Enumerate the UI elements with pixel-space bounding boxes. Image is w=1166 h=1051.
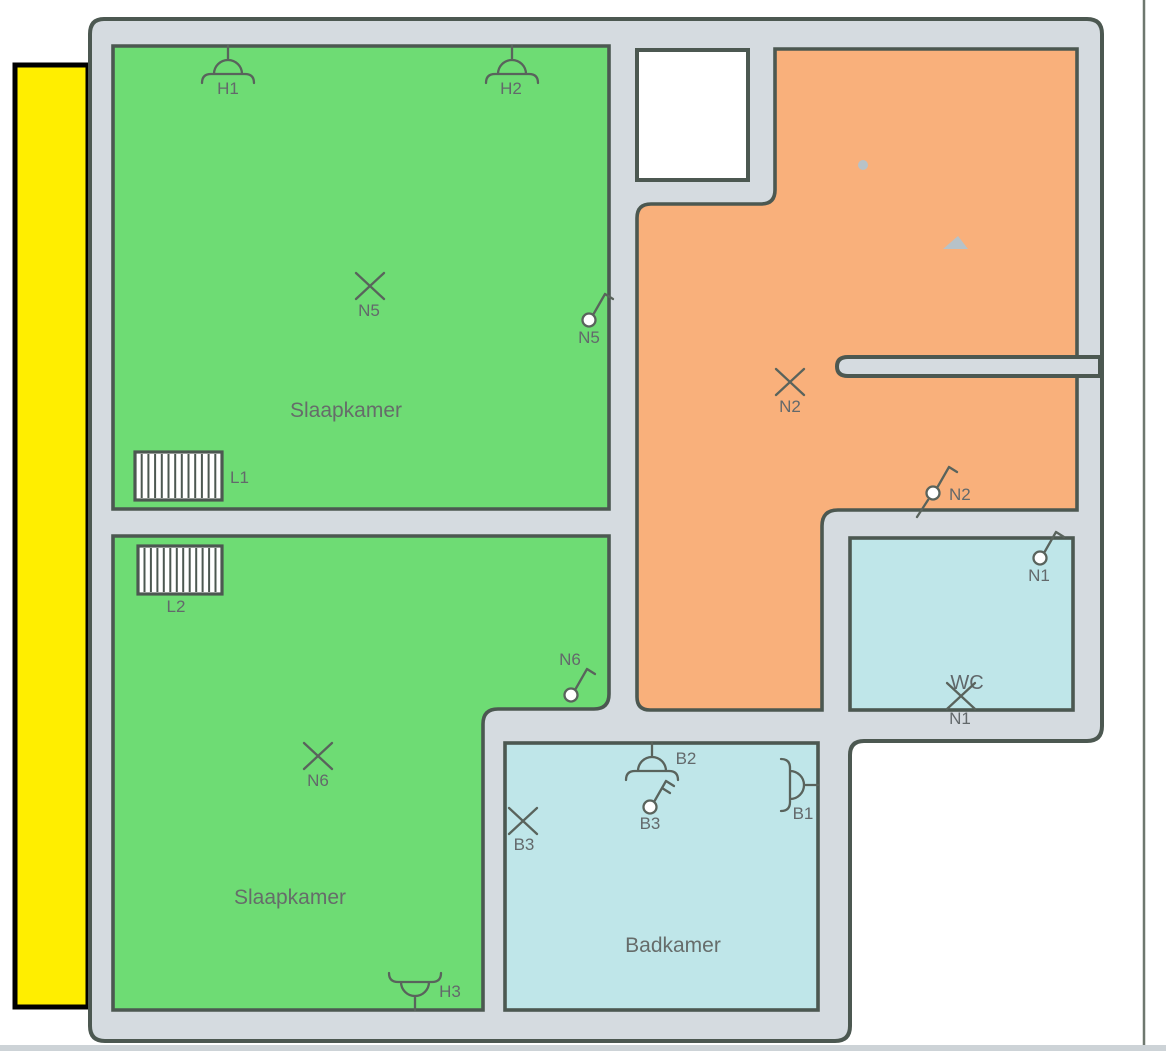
symbol-label-B3-lamp: B3 xyxy=(514,835,535,854)
switch-dot-N5-switch xyxy=(583,314,596,327)
switch-dot-N1-switch xyxy=(1034,552,1047,565)
shaft-void xyxy=(637,50,748,180)
symbol-label-B2: B2 xyxy=(676,749,697,768)
symbol-label-B3-switch: B3 xyxy=(640,814,661,833)
symbol-label-N5-switch: N5 xyxy=(578,328,600,347)
switch-dot-N2-switch xyxy=(927,487,940,500)
room-label-badkamer: Badkamer xyxy=(625,934,721,957)
symbol-label-H2: H2 xyxy=(500,79,522,98)
symbol-label-H3: H3 xyxy=(439,982,461,1001)
symbol-label-N2-lamp: N2 xyxy=(779,397,801,416)
room-badkamer xyxy=(505,743,818,1010)
room-label-slaapkamer-2: Slaapkamer xyxy=(234,886,346,909)
switch-dot-B3-switch xyxy=(644,801,657,814)
stair-wall-stub xyxy=(837,357,1100,376)
symbol-label-H1: H1 xyxy=(217,79,239,98)
symbol-label-N1-switch: N1 xyxy=(1028,566,1050,585)
symbol-label-N6-switch: N6 xyxy=(559,650,581,669)
symbol-label-N5-lamp: N5 xyxy=(358,301,380,320)
symbol-label-N1-lamp: N1 xyxy=(949,709,971,728)
highlight-strip xyxy=(15,65,88,1007)
symbol-label-N6-lamp: N6 xyxy=(307,771,329,790)
page-bottom-strip xyxy=(0,1045,1166,1051)
room-label-slaapkamer-1: Slaapkamer xyxy=(290,399,402,422)
switch-dot-N6-switch xyxy=(565,689,578,702)
symbol-label-L2: L2 xyxy=(167,597,186,616)
scan-artifact-dot xyxy=(858,160,868,170)
symbol-label-B1: B1 xyxy=(793,804,814,823)
symbol-label-N2-switch: N2 xyxy=(949,485,971,504)
symbol-label-L1: L1 xyxy=(230,468,249,487)
floor-plan: Slaapkamer Slaapkamer Badkamer WC H1H2H3… xyxy=(0,0,1166,1051)
